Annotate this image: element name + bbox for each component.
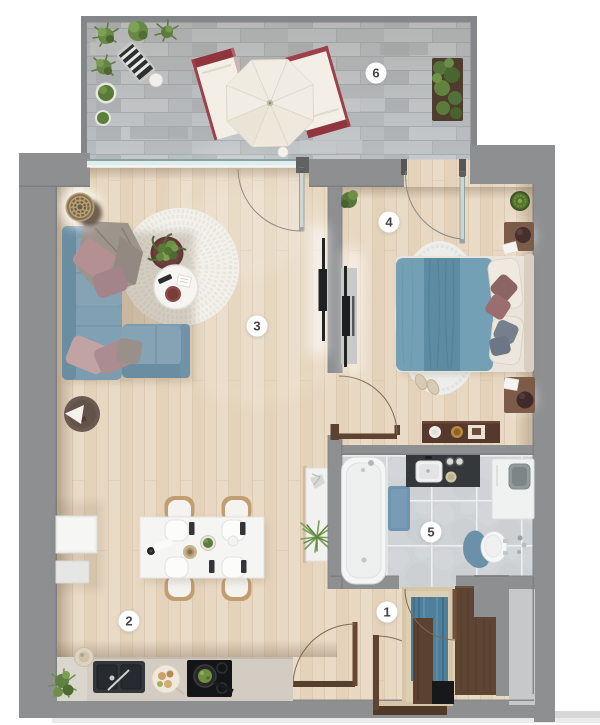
svg-text:1: 1: [383, 605, 390, 620]
svg-text:5: 5: [427, 525, 434, 540]
svg-text:2: 2: [125, 614, 132, 629]
svg-text:6: 6: [372, 66, 379, 81]
svg-text:4: 4: [385, 215, 393, 230]
svg-text:3: 3: [253, 319, 260, 334]
